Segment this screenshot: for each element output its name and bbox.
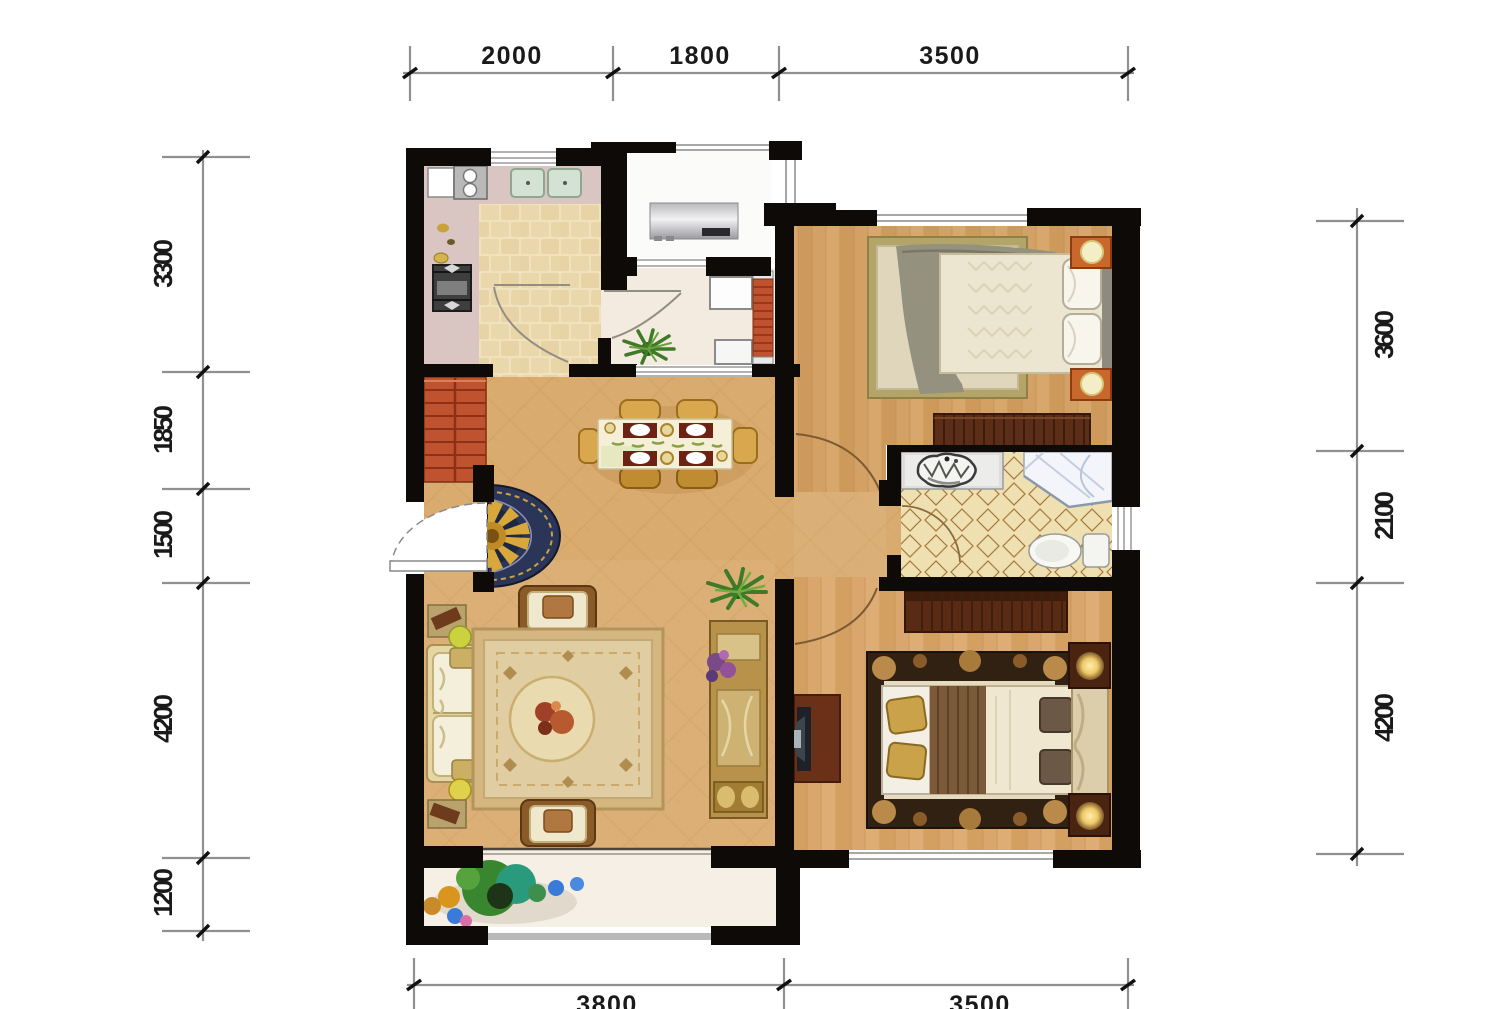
svg-text:3500: 3500 — [949, 991, 1011, 1009]
svg-text:4200: 4200 — [148, 695, 178, 743]
svg-text:3500: 3500 — [919, 42, 981, 70]
svg-text:2100: 2100 — [1369, 492, 1399, 540]
svg-text:2000: 2000 — [481, 42, 543, 70]
svg-text:1800: 1800 — [669, 42, 731, 70]
svg-text:3300: 3300 — [148, 240, 178, 288]
svg-text:3600: 3600 — [1369, 311, 1399, 359]
svg-text:1500: 1500 — [148, 511, 178, 559]
svg-text:3800: 3800 — [576, 991, 638, 1009]
svg-text:4200: 4200 — [1369, 694, 1399, 742]
svg-text:1850: 1850 — [148, 406, 178, 454]
svg-text:1200: 1200 — [148, 869, 178, 917]
